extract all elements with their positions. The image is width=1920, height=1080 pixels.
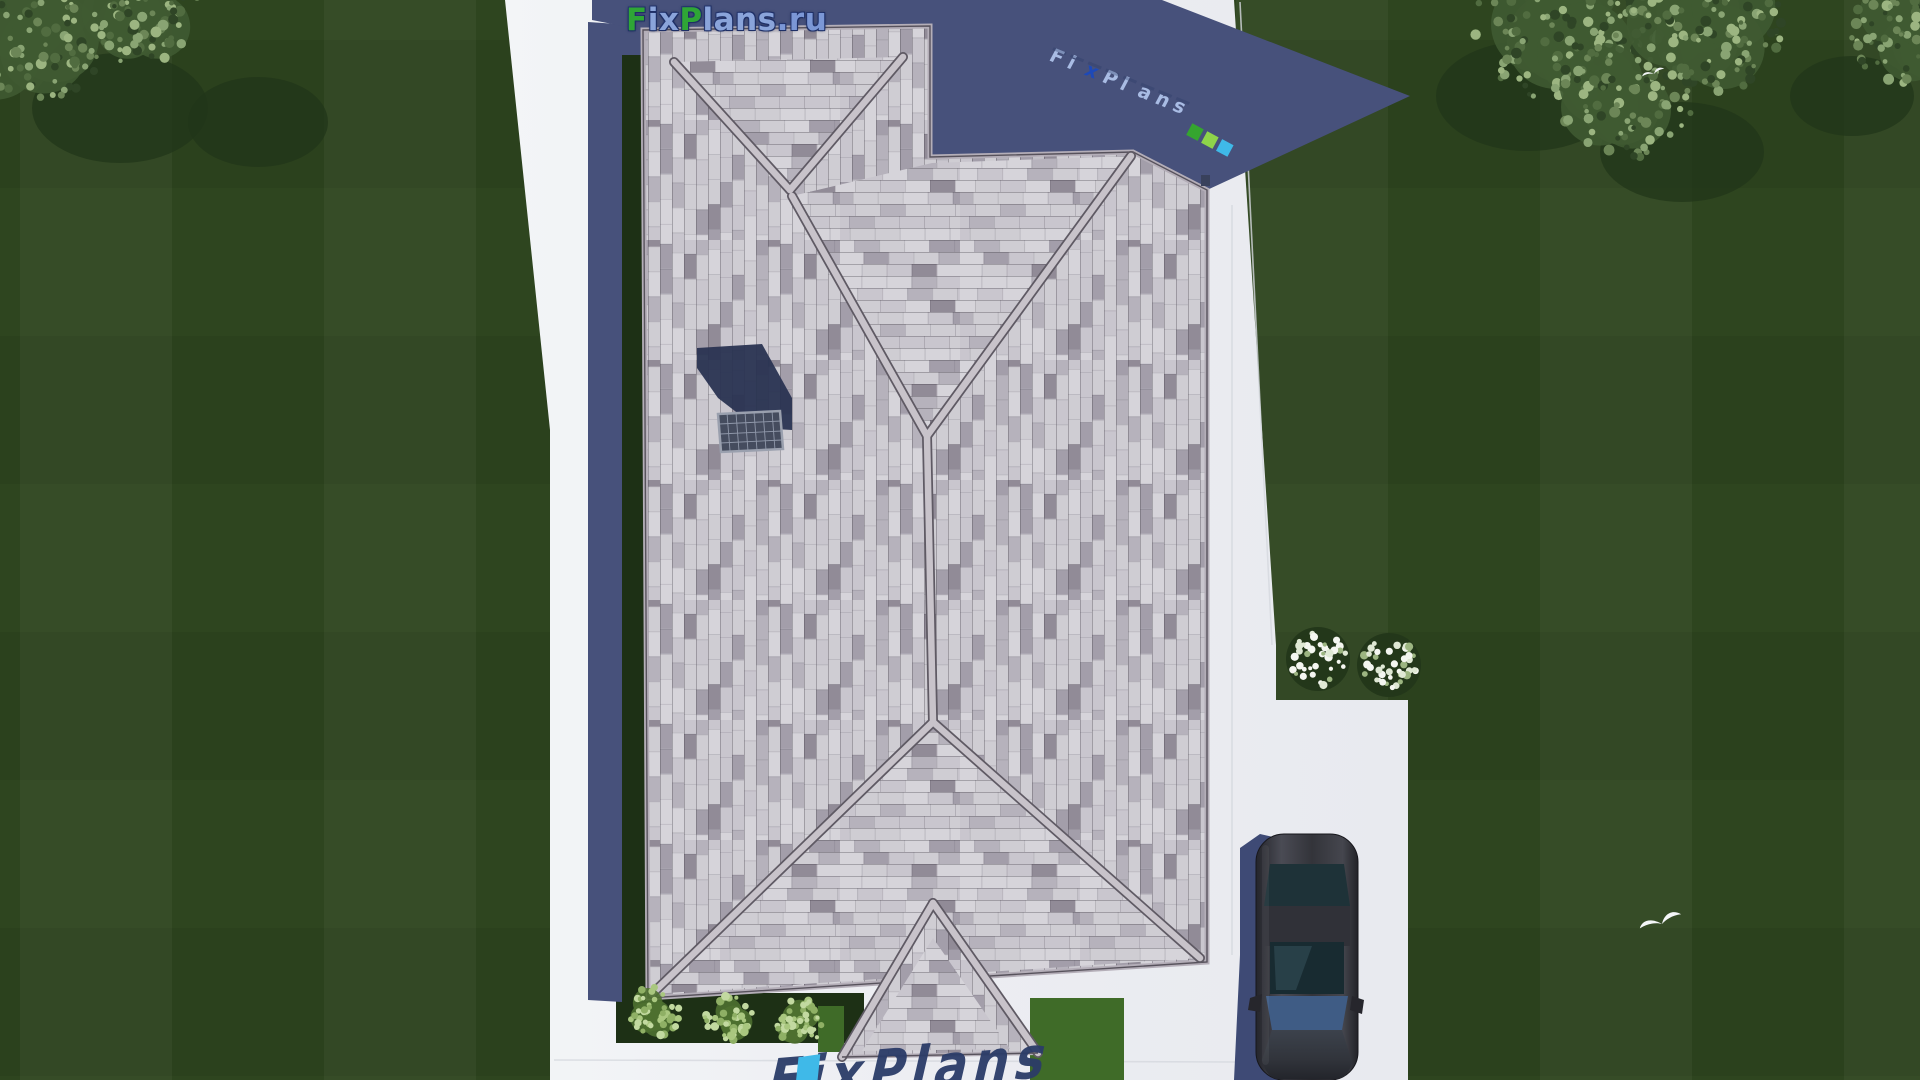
- roof-vent: [1201, 175, 1210, 186]
- watermark-bottom-accent-square: [796, 1054, 821, 1080]
- watermark-segment: F: [626, 2, 648, 38]
- car-rear-window: [1264, 864, 1350, 906]
- watermark-segment: .ru: [777, 2, 828, 38]
- watermark-segment: P: [679, 2, 702, 38]
- car-windshield: [1266, 996, 1348, 1030]
- watermark-segment: ix: [648, 2, 680, 38]
- car-body-highlight: [1262, 845, 1269, 1065]
- car-roof: [1264, 906, 1350, 946]
- car-hood: [1262, 1030, 1352, 1079]
- watermark-logo-top: FixPlans.ru: [626, 2, 827, 38]
- skylight-window: [718, 411, 783, 452]
- aerial-render-stage: FixPlans: [0, 0, 1920, 1080]
- parked-car: [1234, 834, 1364, 1080]
- house-roof: [643, 26, 1210, 1057]
- aerial-render: FixPlans: [0, 0, 1920, 1080]
- watermark-segment: lans: [703, 2, 777, 38]
